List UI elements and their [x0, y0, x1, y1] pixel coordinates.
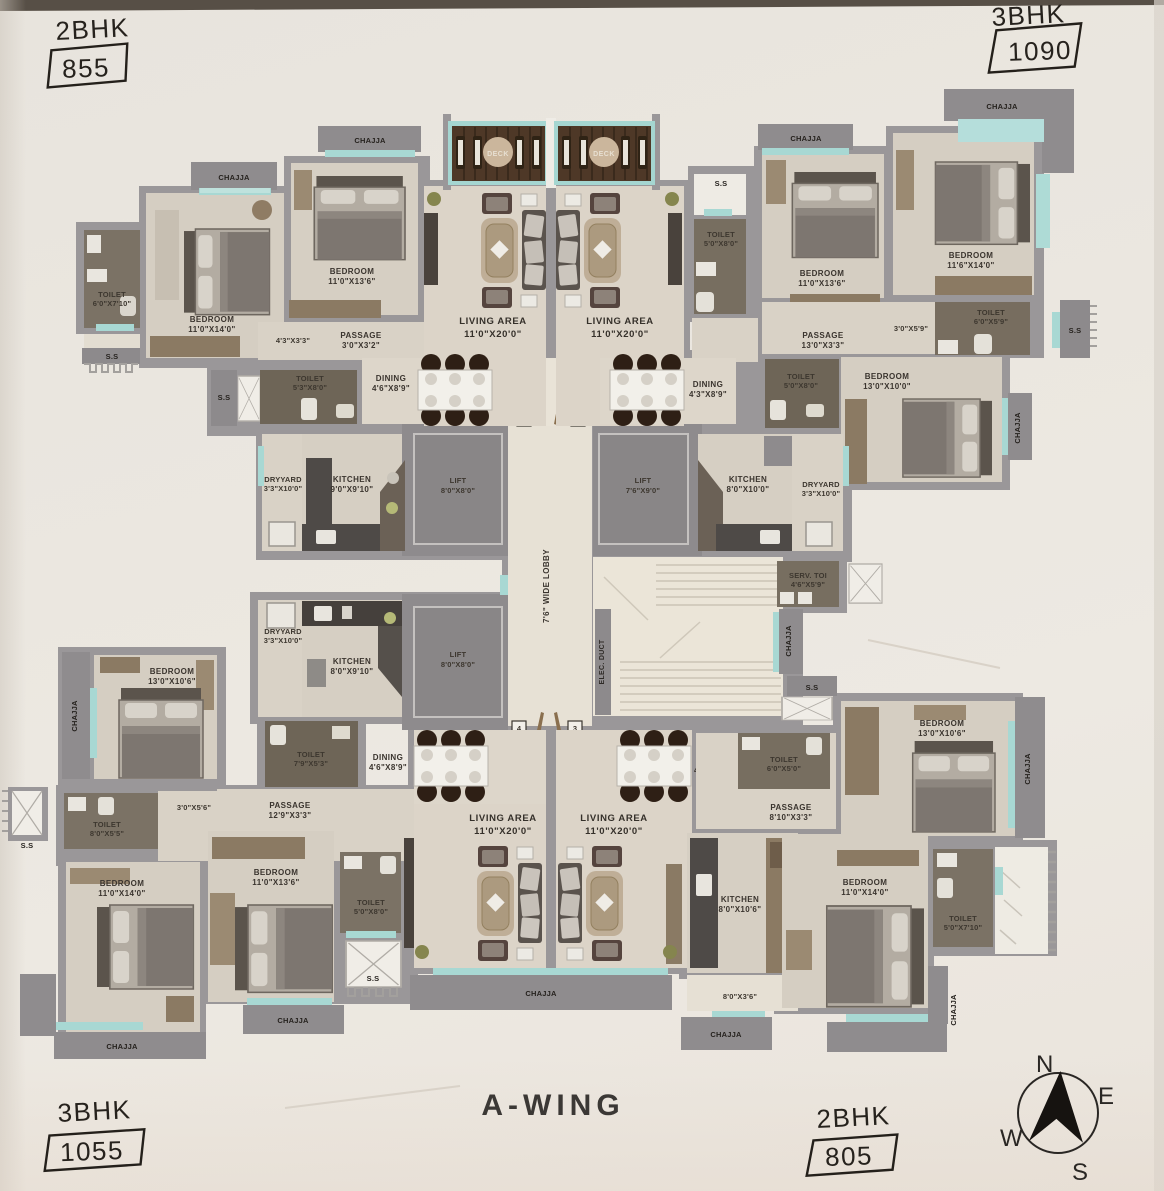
- svg-text:LIVING AREA: LIVING AREA: [469, 813, 536, 824]
- svg-text:CHAJJA: CHAJJA: [710, 1030, 742, 1039]
- svg-text:S.S: S.S: [806, 683, 819, 692]
- svg-text:11'0"X13'6": 11'0"X13'6": [798, 279, 845, 288]
- svg-text:TOILET: TOILET: [977, 308, 1005, 317]
- svg-text:PASSAGE: PASSAGE: [340, 331, 382, 340]
- svg-text:11'0"X14'0": 11'0"X14'0": [841, 888, 888, 897]
- svg-text:BEDROOM: BEDROOM: [920, 719, 965, 728]
- svg-text:CHAJJA: CHAJJA: [354, 136, 386, 145]
- svg-text:13'0"X10'0": 13'0"X10'0": [863, 382, 911, 391]
- svg-text:TOILET: TOILET: [770, 755, 798, 764]
- svg-text:7'6" WIDE LOBBY: 7'6" WIDE LOBBY: [542, 549, 551, 623]
- svg-text:BEDROOM: BEDROOM: [949, 251, 994, 260]
- svg-text:11'0"X20'0": 11'0"X20'0": [464, 329, 522, 340]
- svg-text:BEDROOM: BEDROOM: [254, 868, 299, 877]
- svg-text:DINING: DINING: [376, 374, 406, 383]
- svg-text:13'0"X3'3": 13'0"X3'3": [802, 341, 845, 350]
- svg-text:TOILET: TOILET: [93, 820, 121, 829]
- svg-text:TOILET: TOILET: [707, 230, 735, 239]
- svg-text:BEDROOM: BEDROOM: [100, 879, 145, 888]
- svg-text:13'0"X10'6": 13'0"X10'6": [918, 729, 966, 738]
- svg-text:DRYYARD: DRYYARD: [264, 627, 302, 636]
- svg-text:5'0"X8'0": 5'0"X8'0": [704, 239, 738, 248]
- svg-text:1090: 1090: [1008, 35, 1073, 67]
- svg-text:S: S: [1072, 1159, 1088, 1186]
- svg-text:1055: 1055: [60, 1135, 125, 1167]
- svg-text:11'0"X14'0": 11'0"X14'0": [188, 325, 235, 334]
- svg-text:TOILET: TOILET: [949, 914, 977, 923]
- svg-text:5'0"X8'0": 5'0"X8'0": [354, 907, 388, 916]
- svg-text:CHAJJA: CHAJJA: [949, 994, 958, 1026]
- svg-text:8'0"X3'6": 8'0"X3'6": [723, 992, 757, 1001]
- svg-text:13'0"X10'6": 13'0"X10'6": [148, 677, 196, 686]
- svg-text:W: W: [1000, 1125, 1023, 1152]
- svg-text:8'0"X8'0": 8'0"X8'0": [441, 486, 475, 495]
- svg-text:S.S: S.S: [21, 841, 34, 850]
- svg-text:11'0"X13'6": 11'0"X13'6": [252, 878, 299, 887]
- svg-text:DRYYARD: DRYYARD: [802, 480, 840, 489]
- svg-text:2BHK: 2BHK: [55, 12, 130, 46]
- svg-text:S.S: S.S: [715, 179, 728, 188]
- svg-text:CHAJJA: CHAJJA: [986, 102, 1018, 111]
- svg-text:11'0"X20'0": 11'0"X20'0": [591, 329, 649, 340]
- svg-text:PASSAGE: PASSAGE: [269, 801, 311, 810]
- svg-text:S.S: S.S: [106, 352, 119, 361]
- svg-text:S.S: S.S: [218, 393, 231, 402]
- svg-text:BEDROOM: BEDROOM: [843, 878, 888, 887]
- svg-text:11'0"X20'0": 11'0"X20'0": [474, 826, 532, 837]
- svg-text:8'0"X10'6": 8'0"X10'6": [719, 905, 762, 914]
- svg-text:CHAJJA: CHAJJA: [218, 173, 250, 182]
- svg-text:11'0"X20'0": 11'0"X20'0": [585, 826, 643, 837]
- svg-text:4'3"X3'3": 4'3"X3'3": [276, 336, 310, 345]
- svg-text:KITCHEN: KITCHEN: [333, 475, 371, 484]
- svg-text:8'0"X10'0": 8'0"X10'0": [727, 485, 770, 494]
- svg-text:DRYYARD: DRYYARD: [264, 475, 302, 484]
- svg-text:BEDROOM: BEDROOM: [150, 667, 195, 676]
- svg-text:9'0"X9'10": 9'0"X9'10": [331, 485, 374, 494]
- svg-text:3'0"X3'2": 3'0"X3'2": [342, 341, 380, 350]
- svg-text:LIVING AREA: LIVING AREA: [459, 316, 526, 327]
- svg-text:ELEC. DUCT: ELEC. DUCT: [599, 639, 606, 684]
- svg-text:KITCHEN: KITCHEN: [721, 895, 759, 904]
- svg-text:TOILET: TOILET: [296, 374, 324, 383]
- svg-text:6'0"X7'10": 6'0"X7'10": [93, 299, 132, 308]
- svg-text:2BHK: 2BHK: [816, 1100, 891, 1134]
- svg-text:5'0"X7'10": 5'0"X7'10": [944, 923, 983, 932]
- svg-text:DINING: DINING: [373, 753, 403, 762]
- svg-text:8'0"X5'5": 8'0"X5'5": [90, 829, 124, 838]
- svg-text:3'0"X5'6": 3'0"X5'6": [177, 803, 211, 812]
- svg-text:A-WING: A-WING: [481, 1089, 624, 1122]
- svg-text:CHAJJA: CHAJJA: [106, 1042, 138, 1051]
- svg-text:KITCHEN: KITCHEN: [729, 475, 767, 484]
- svg-text:11'0"X13'6": 11'0"X13'6": [328, 277, 375, 286]
- svg-text:11'0"X14'0": 11'0"X14'0": [98, 889, 145, 898]
- svg-text:LIFT: LIFT: [450, 650, 467, 659]
- svg-text:8'10"X3'3": 8'10"X3'3": [770, 813, 813, 822]
- svg-text:PASSAGE: PASSAGE: [770, 803, 812, 812]
- svg-text:S.S: S.S: [1069, 326, 1082, 335]
- svg-text:7'6"X9'0": 7'6"X9'0": [626, 486, 660, 495]
- svg-text:8'0"X8'0": 8'0"X8'0": [441, 660, 475, 669]
- svg-text:11'6"X14'0": 11'6"X14'0": [947, 261, 994, 270]
- svg-text:5'0"X8'0": 5'0"X8'0": [784, 381, 818, 390]
- svg-text:CHAJJA: CHAJJA: [525, 989, 557, 998]
- svg-text:S.S: S.S: [367, 974, 380, 983]
- svg-text:3'0"X5'9": 3'0"X5'9": [894, 324, 928, 333]
- svg-text:PASSAGE: PASSAGE: [802, 331, 844, 340]
- svg-text:CHAJJA: CHAJJA: [1023, 753, 1032, 785]
- svg-text:E: E: [1098, 1083, 1114, 1110]
- svg-text:5'3"X8'0": 5'3"X8'0": [293, 383, 327, 392]
- svg-text:TOILET: TOILET: [357, 898, 385, 907]
- svg-text:12'9"X3'3": 12'9"X3'3": [269, 811, 312, 820]
- svg-text:CHAJJA: CHAJJA: [70, 700, 79, 732]
- svg-text:LIFT: LIFT: [635, 476, 652, 485]
- svg-text:6'0"X5'0": 6'0"X5'0": [767, 764, 801, 773]
- svg-text:CHAJJA: CHAJJA: [1013, 412, 1022, 444]
- svg-text:TOILET: TOILET: [98, 290, 126, 299]
- svg-text:4'3"X8'9": 4'3"X8'9": [689, 390, 727, 399]
- svg-text:LIFT: LIFT: [450, 476, 467, 485]
- svg-text:TOILET: TOILET: [787, 372, 815, 381]
- svg-text:4'6"X8'9": 4'6"X8'9": [372, 384, 410, 393]
- svg-text:CHAJJA: CHAJJA: [277, 1016, 309, 1025]
- svg-text:LIVING AREA: LIVING AREA: [586, 316, 653, 327]
- svg-text:4'6"X8'9": 4'6"X8'9": [369, 763, 407, 772]
- svg-text:LIVING AREA: LIVING AREA: [580, 813, 647, 824]
- svg-text:N: N: [1036, 1051, 1053, 1078]
- svg-text:3'3"X10'0": 3'3"X10'0": [264, 484, 303, 493]
- svg-text:3'3"X10'0": 3'3"X10'0": [264, 636, 303, 645]
- svg-text:BEDROOM: BEDROOM: [800, 269, 845, 278]
- svg-text:3BHK: 3BHK: [57, 1094, 132, 1128]
- svg-text:3'3"X10'0": 3'3"X10'0": [802, 489, 841, 498]
- svg-text:BEDROOM: BEDROOM: [330, 267, 375, 276]
- svg-text:TOILET: TOILET: [297, 750, 325, 759]
- svg-text:6'0"X5'9": 6'0"X5'9": [974, 317, 1008, 326]
- svg-text:DINING: DINING: [693, 380, 723, 389]
- svg-text:7'9"X5'3": 7'9"X5'3": [294, 759, 328, 768]
- svg-text:8'0"X9'10": 8'0"X9'10": [331, 667, 374, 676]
- svg-text:855: 855: [62, 52, 111, 84]
- svg-text:CHAJJA: CHAJJA: [790, 134, 822, 143]
- svg-text:4'6"X5'9": 4'6"X5'9": [791, 580, 825, 589]
- svg-text:CHAJJA: CHAJJA: [784, 625, 793, 657]
- svg-text:SERV. TOI: SERV. TOI: [789, 571, 827, 580]
- svg-text:BEDROOM: BEDROOM: [865, 372, 910, 381]
- svg-text:BEDROOM: BEDROOM: [190, 315, 235, 324]
- svg-text:KITCHEN: KITCHEN: [333, 657, 371, 666]
- svg-text:805: 805: [825, 1140, 874, 1172]
